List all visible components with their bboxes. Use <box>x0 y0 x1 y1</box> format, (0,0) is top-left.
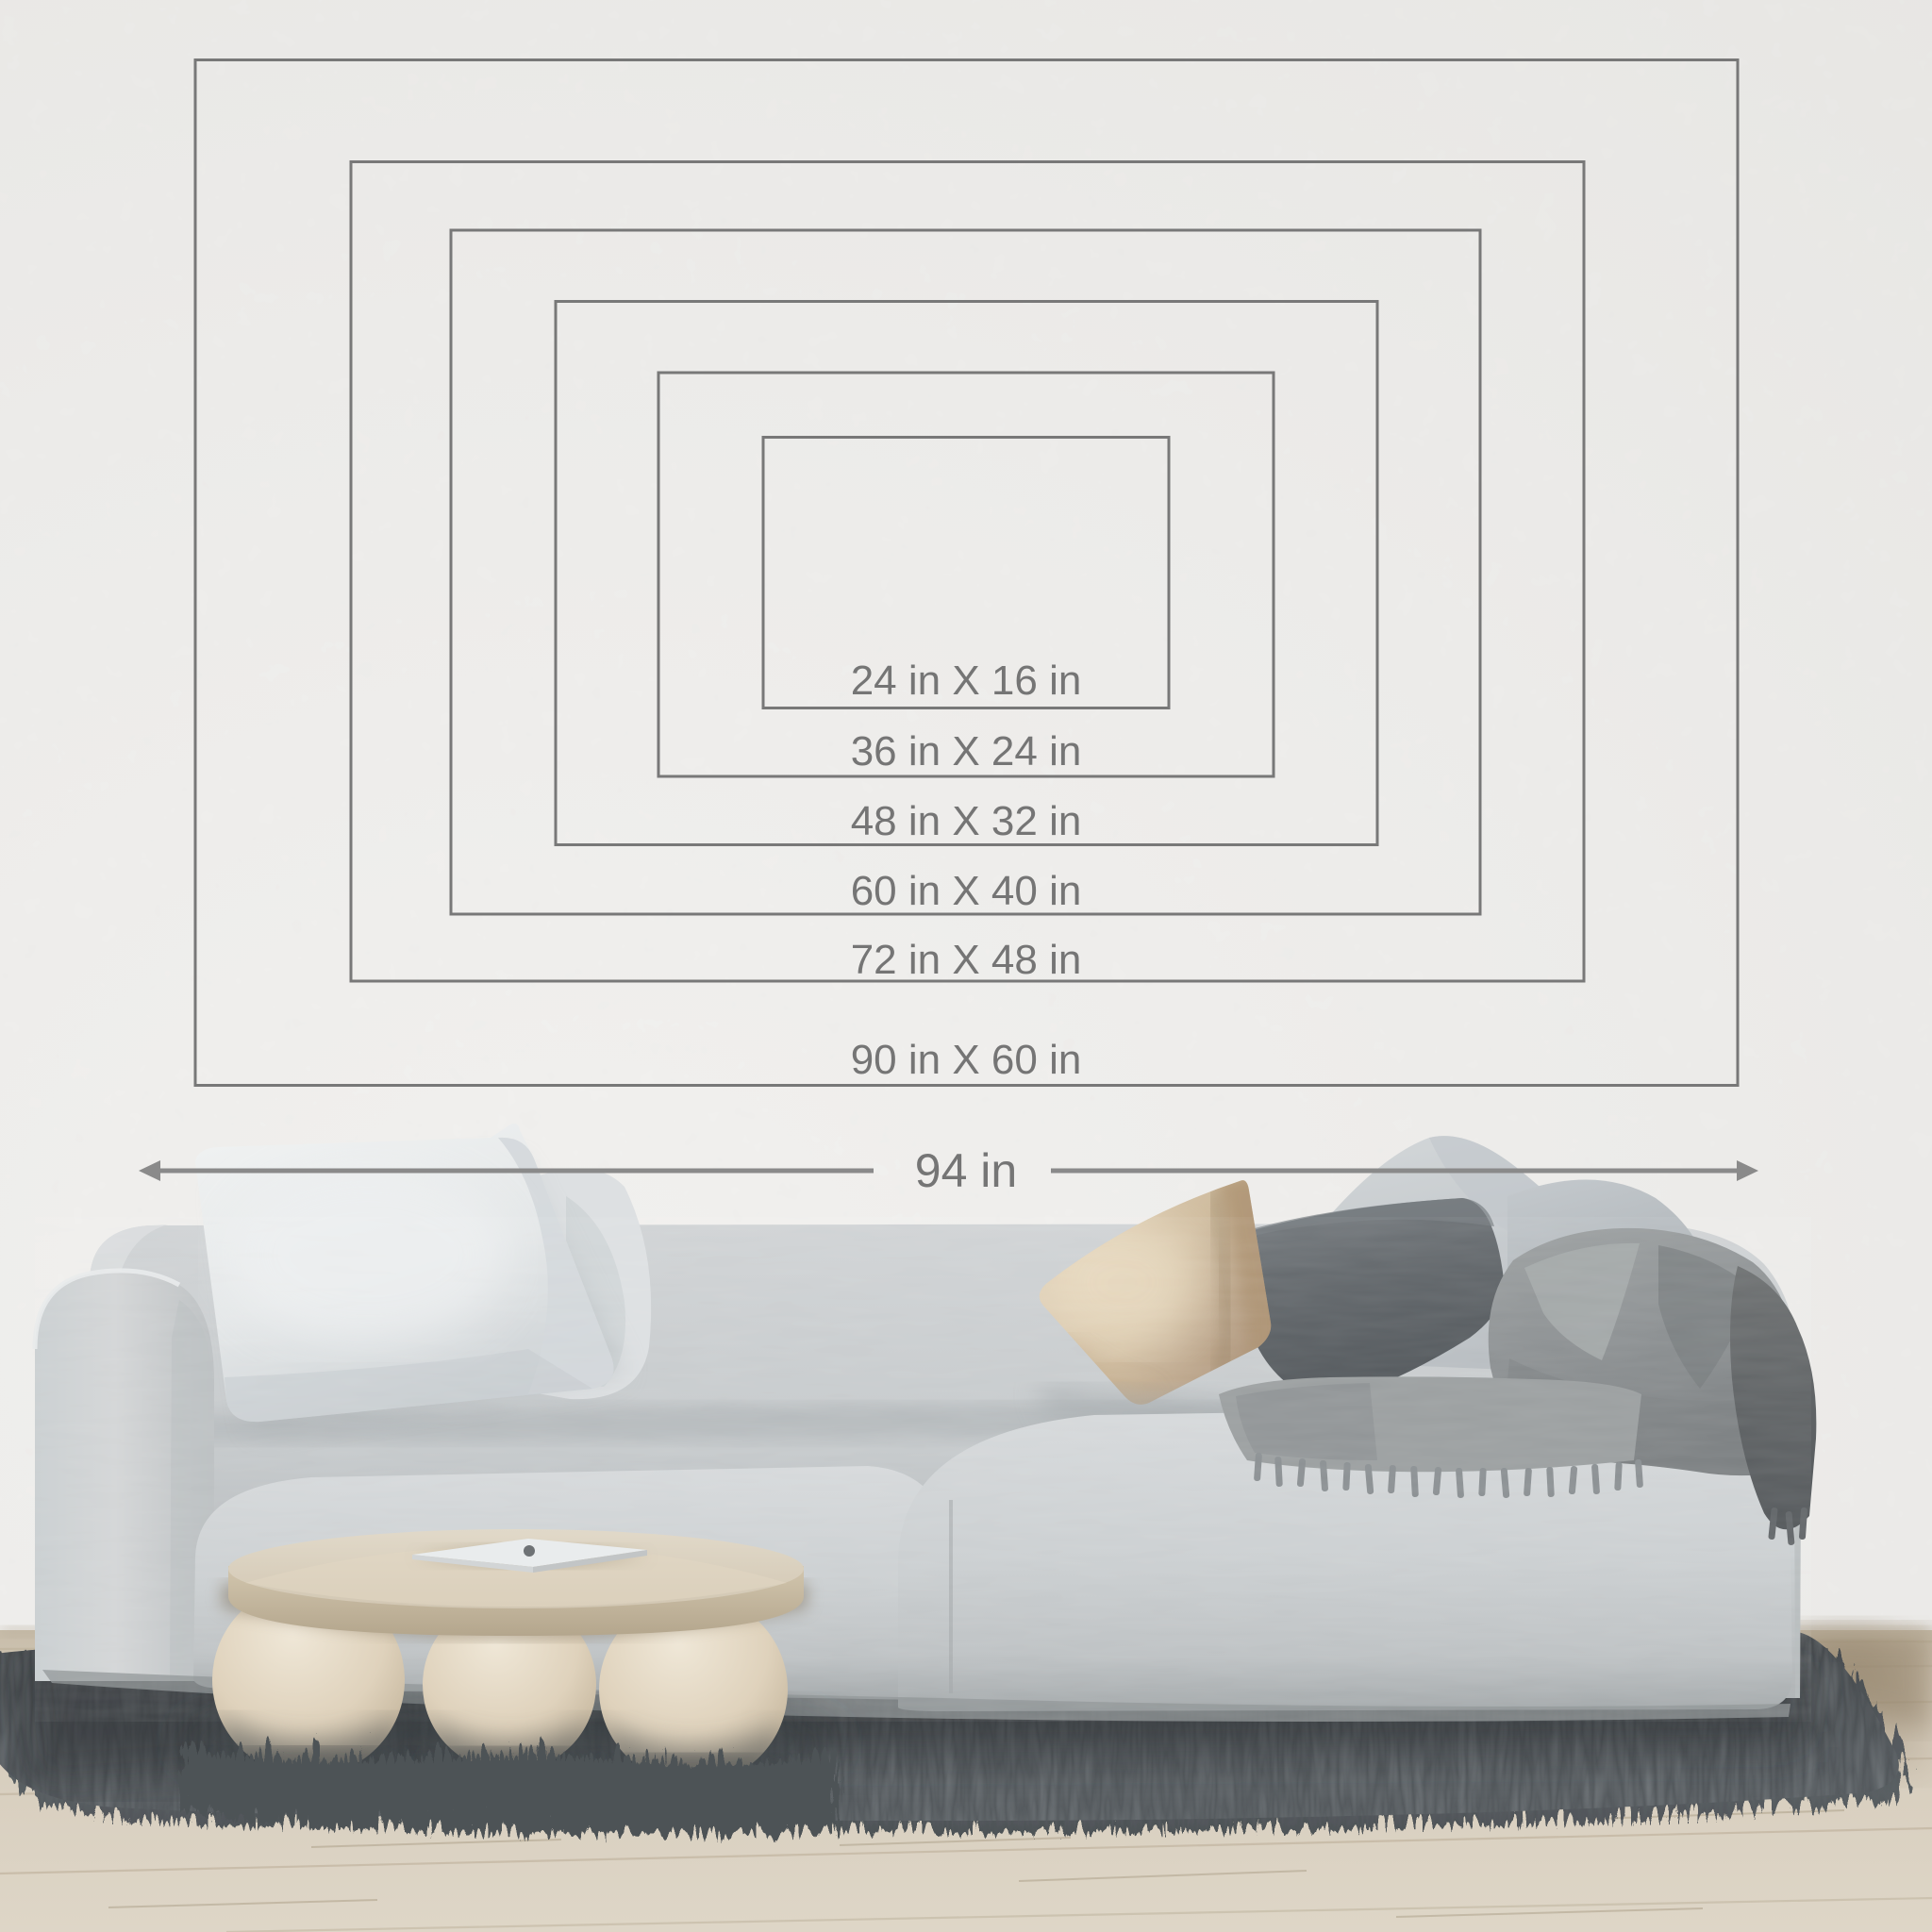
svg-text:94 in: 94 in <box>915 1144 1017 1197</box>
svg-text:48 in X 32 in: 48 in X 32 in <box>851 798 1082 844</box>
svg-text:72 in X 48 in: 72 in X 48 in <box>851 937 1082 983</box>
svg-text:90 in X 60 in: 90 in X 60 in <box>851 1037 1082 1083</box>
svg-text:24 in X 16 in: 24 in X 16 in <box>851 658 1082 704</box>
svg-text:60 in X 40 in: 60 in X 40 in <box>851 868 1082 914</box>
svg-text:36 in X 24 in: 36 in X 24 in <box>851 728 1082 774</box>
